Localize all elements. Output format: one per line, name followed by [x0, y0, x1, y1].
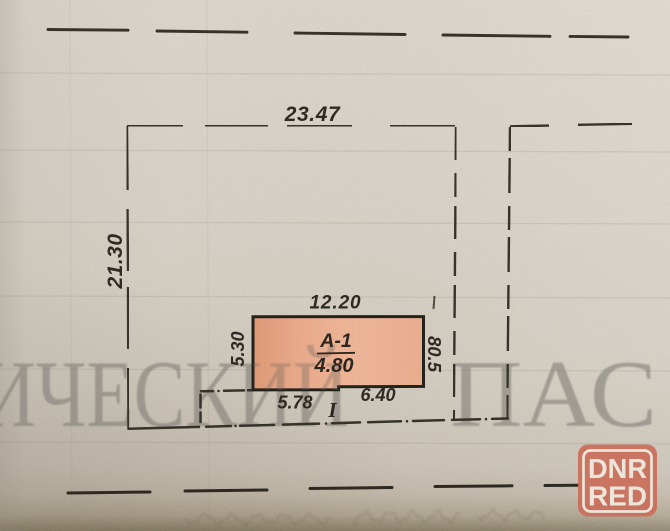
svg-text:DNR: DNR	[588, 453, 647, 484]
svg-text:5.30: 5.30	[228, 331, 248, 366]
svg-text:ПАС: ПАС	[450, 341, 657, 447]
svg-text:6.40: 6.40	[360, 385, 395, 405]
svg-text:RED: RED	[588, 481, 647, 512]
svg-text:4.80: 4.80	[314, 355, 354, 377]
svg-text:12.20: 12.20	[309, 293, 361, 314]
svg-text:21.30: 21.30	[104, 233, 127, 289]
svg-text:5.78: 5.78	[277, 393, 312, 413]
svg-text:I: I	[327, 398, 337, 422]
svg-text:23.47: 23.47	[284, 103, 341, 126]
svg-text:80.5: 80.5	[424, 336, 445, 373]
svg-text:А-1: А-1	[319, 330, 351, 352]
